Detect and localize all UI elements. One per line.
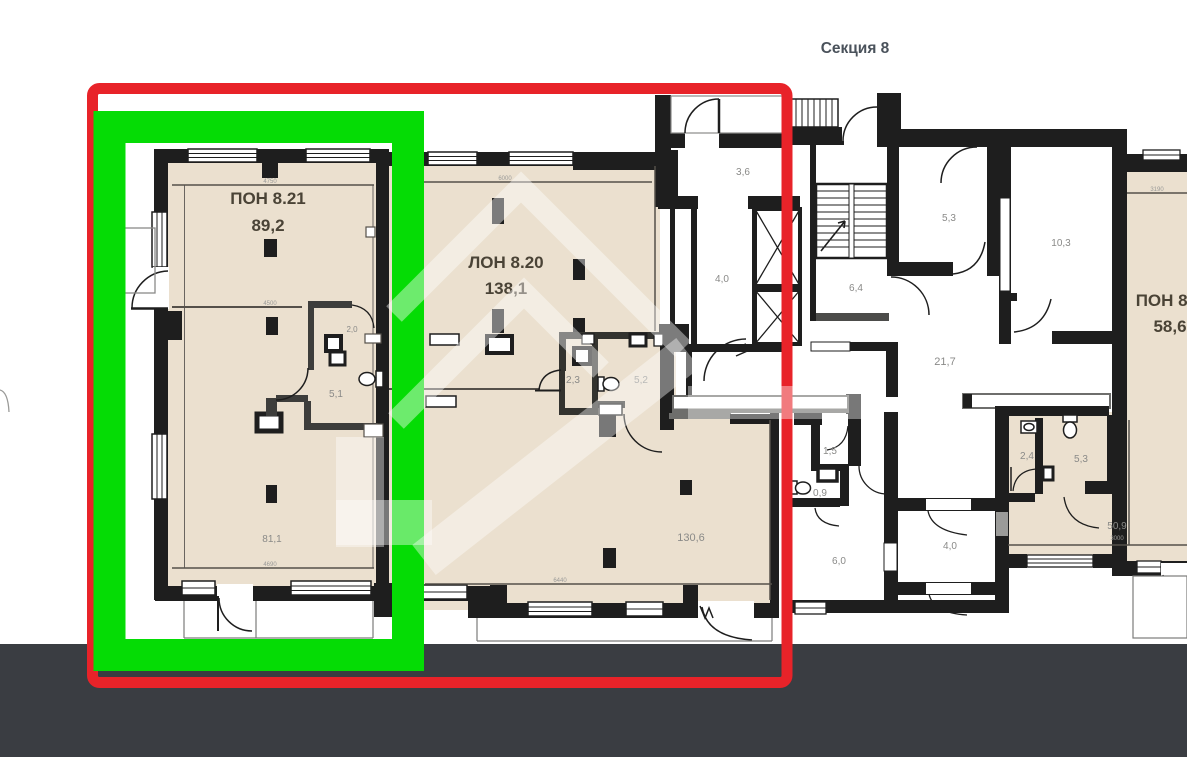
svg-text:2,0: 2,0 bbox=[346, 325, 358, 334]
svg-text:89,2: 89,2 bbox=[251, 216, 284, 235]
svg-text:130,6: 130,6 bbox=[677, 532, 705, 544]
svg-text:1,5: 1,5 bbox=[823, 446, 837, 457]
svg-text:4500: 4500 bbox=[263, 301, 277, 307]
svg-text:10,3: 10,3 bbox=[1051, 238, 1071, 249]
svg-text:3000: 3000 bbox=[1110, 536, 1124, 542]
svg-text:81,1: 81,1 bbox=[262, 534, 282, 545]
svg-text:0,9: 0,9 bbox=[813, 488, 827, 499]
svg-text:6,4: 6,4 bbox=[849, 283, 863, 294]
svg-text:5,1: 5,1 bbox=[329, 389, 343, 400]
svg-text:4,0: 4,0 bbox=[943, 541, 957, 552]
svg-text:ПОН 8.: ПОН 8. bbox=[1136, 291, 1187, 310]
svg-text:2,4: 2,4 bbox=[1020, 451, 1034, 462]
svg-text:4750: 4750 bbox=[263, 179, 277, 185]
svg-text:4690: 4690 bbox=[263, 562, 277, 568]
svg-text:6440: 6440 bbox=[553, 578, 567, 584]
svg-text:5,3: 5,3 bbox=[942, 213, 956, 224]
svg-text:Секция 8: Секция 8 bbox=[821, 40, 890, 57]
svg-text:ЛОН 8.20: ЛОН 8.20 bbox=[468, 253, 543, 272]
svg-text:6000: 6000 bbox=[498, 176, 512, 182]
svg-text:4,0: 4,0 bbox=[715, 274, 729, 285]
svg-text:58,6: 58,6 bbox=[1153, 317, 1186, 336]
svg-text:3,6: 3,6 bbox=[736, 167, 750, 178]
svg-text:6,0: 6,0 bbox=[832, 556, 846, 567]
svg-text:50,9: 50,9 bbox=[1107, 521, 1127, 532]
svg-text:5,3: 5,3 bbox=[1074, 454, 1088, 465]
svg-text:2,3: 2,3 bbox=[566, 375, 580, 386]
svg-text:3190: 3190 bbox=[1150, 187, 1164, 193]
svg-text:ПОН 8.21: ПОН 8.21 bbox=[230, 189, 306, 208]
svg-text:21,7: 21,7 bbox=[934, 356, 955, 368]
